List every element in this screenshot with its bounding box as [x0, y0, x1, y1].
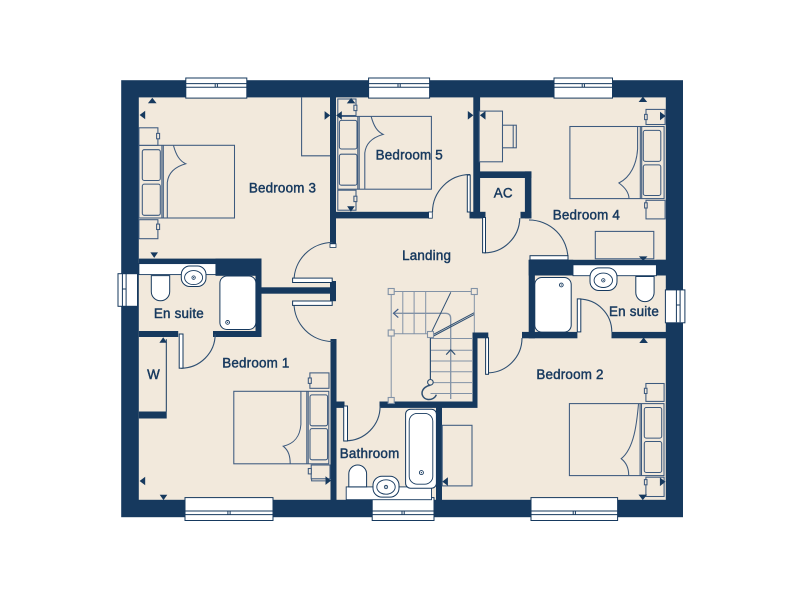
svg-text:En suite: En suite: [609, 304, 659, 319]
svg-text:Bedroom 5: Bedroom 5: [376, 147, 443, 162]
svg-text:AC: AC: [494, 185, 513, 200]
svg-text:En suite: En suite: [154, 306, 204, 321]
svg-text:Bedroom 4: Bedroom 4: [553, 208, 621, 223]
svg-text:Landing: Landing: [402, 248, 451, 263]
svg-text:Bathroom: Bathroom: [340, 446, 400, 461]
svg-text:Bedroom 2: Bedroom 2: [536, 367, 603, 382]
svg-text:Bedroom 3: Bedroom 3: [249, 180, 316, 195]
svg-text:W: W: [147, 367, 160, 382]
svg-text:Bedroom 1: Bedroom 1: [222, 355, 289, 370]
